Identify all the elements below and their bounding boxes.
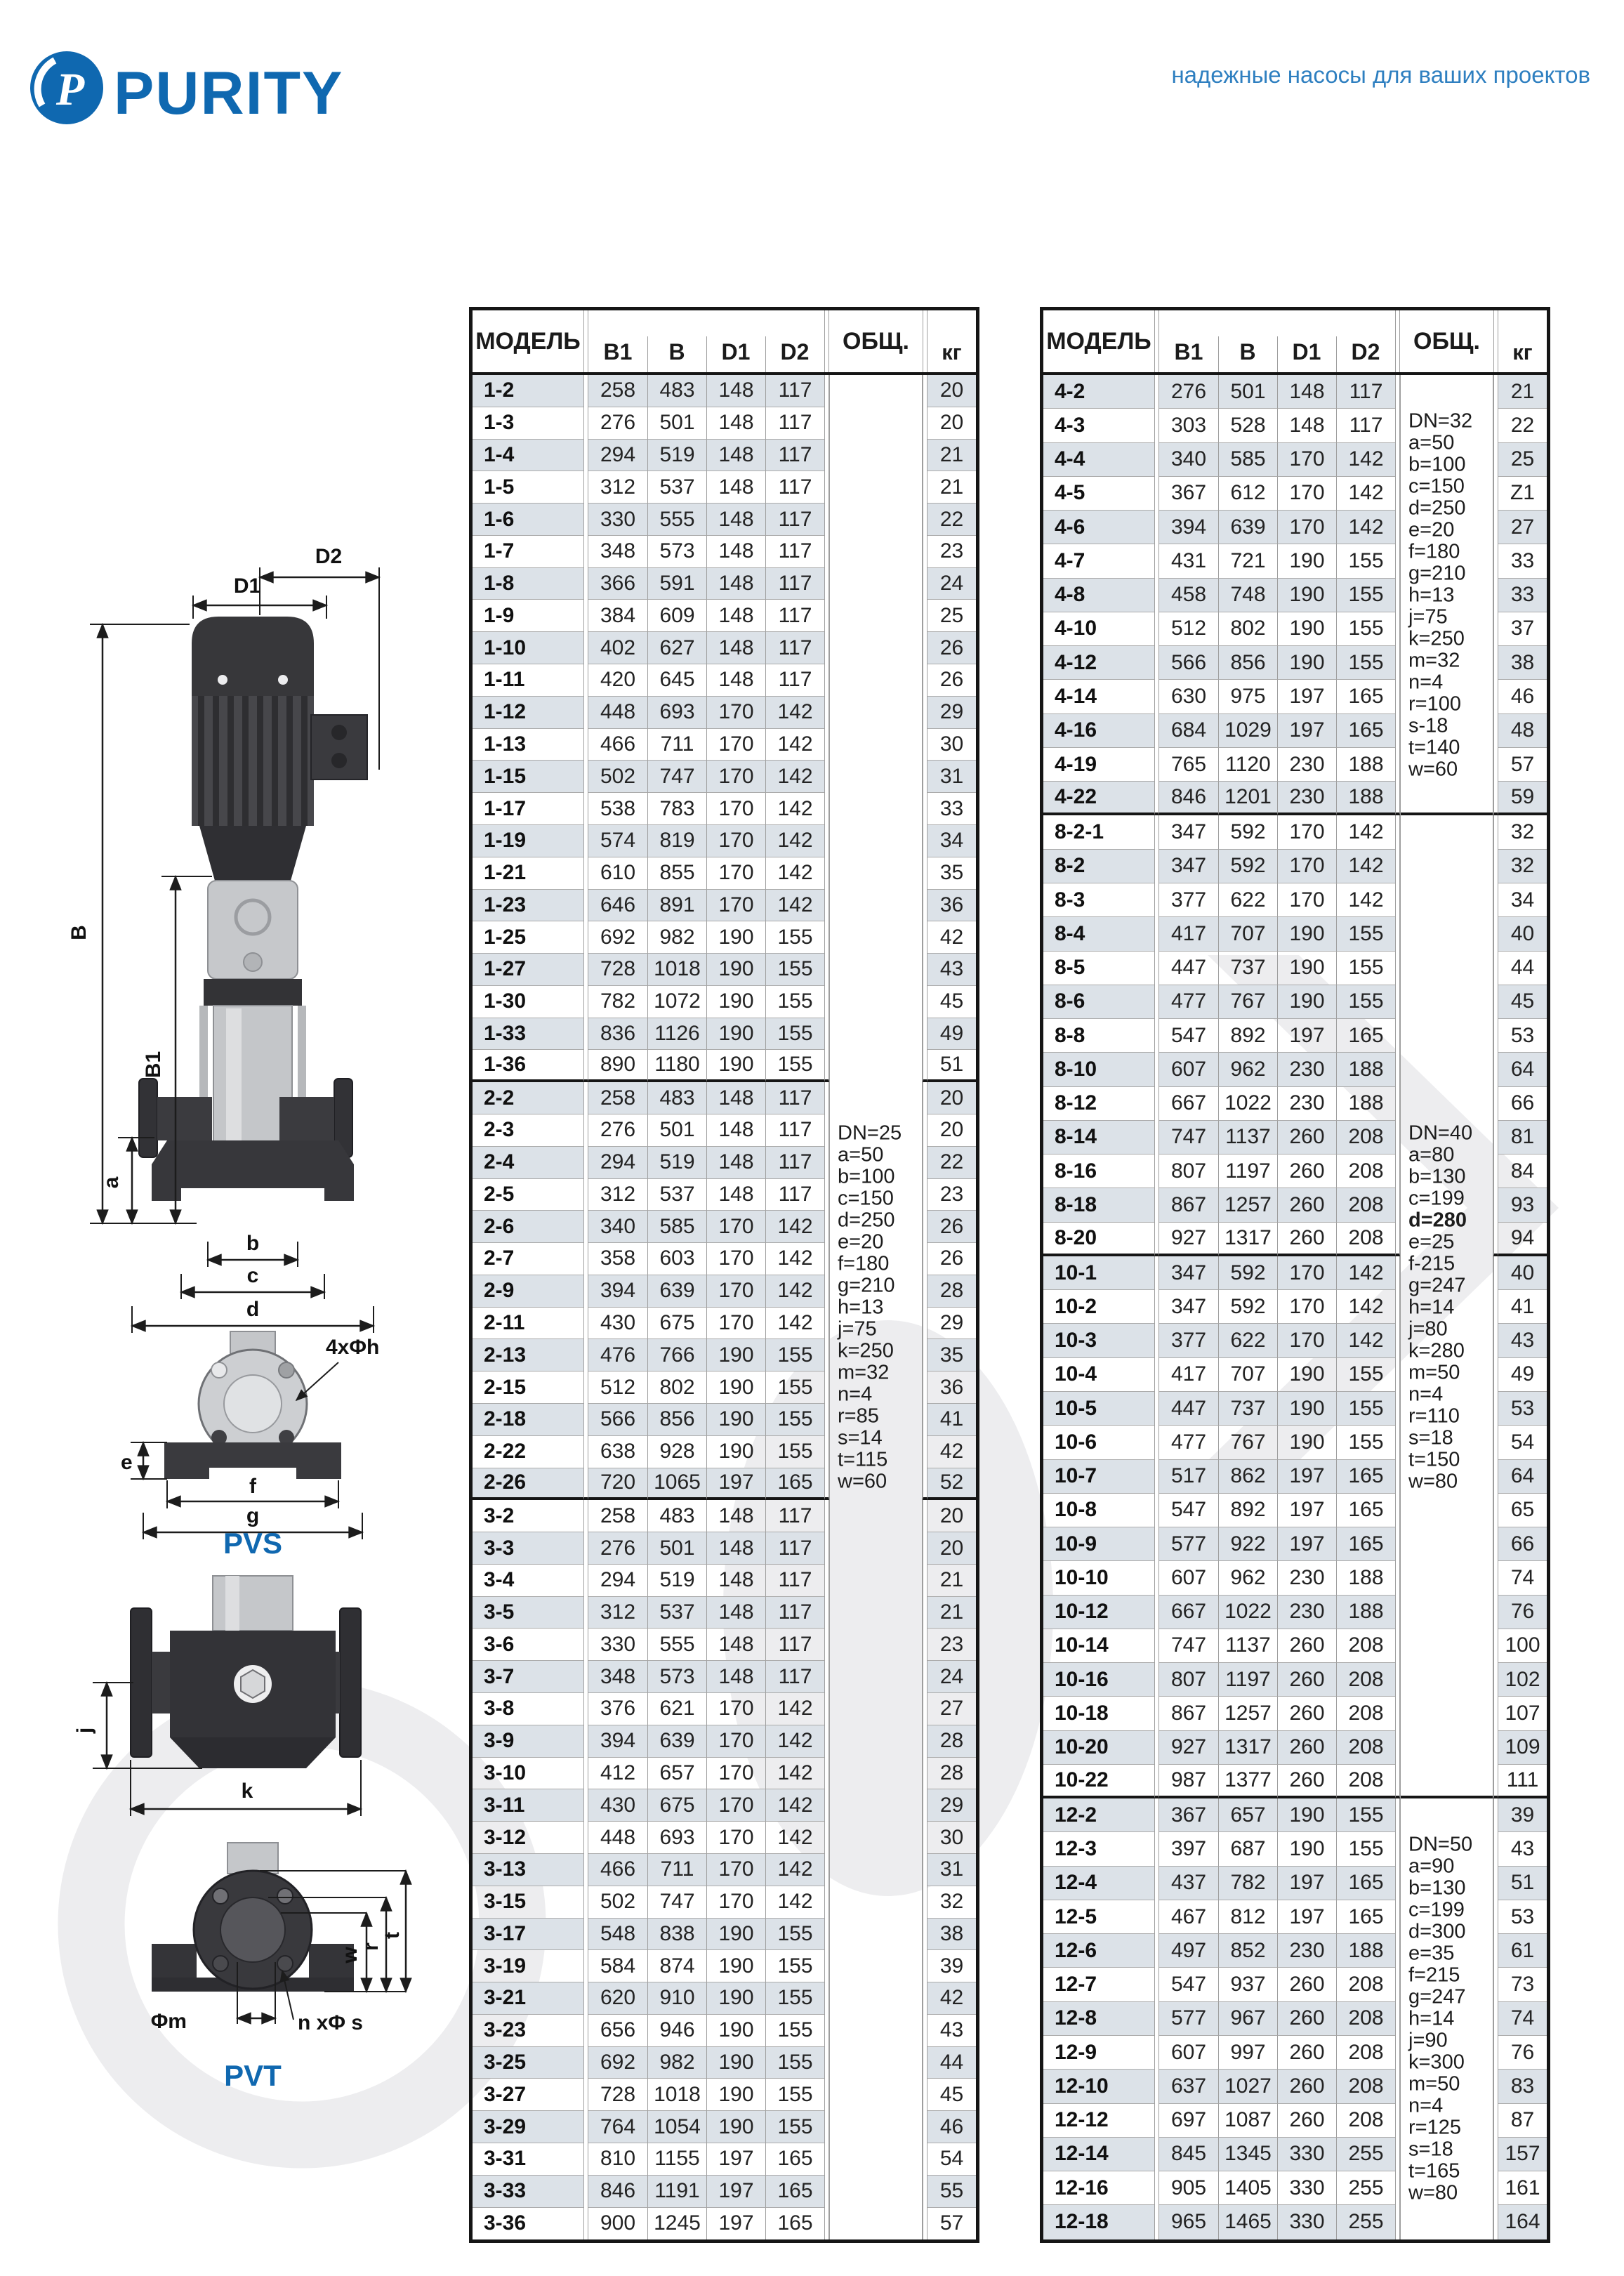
dim-cell: 584	[588, 1950, 647, 1982]
dim-cell: 637	[1159, 2070, 1218, 2103]
dim-cell: 377	[1159, 1324, 1218, 1357]
column-gap	[583, 1919, 588, 1951]
dim-cell: 1018	[647, 2079, 706, 2111]
header-d2: D2	[1336, 310, 1395, 372]
column-gap	[923, 1661, 927, 1693]
dim-cell: 276	[1159, 375, 1218, 409]
dim-cell: 258	[588, 1500, 647, 1532]
dim-cell: 692	[588, 921, 647, 954]
dim-cell: 693	[647, 1822, 706, 1854]
weight-cell: 44	[927, 2047, 976, 2079]
weight-cell: 74	[1498, 2002, 1547, 2036]
model-cell: 3-9	[473, 1725, 583, 1758]
dim-cell: 367	[1159, 477, 1218, 511]
dim-cell: 366	[588, 568, 647, 600]
dim-cell: 965	[1159, 2205, 1218, 2239]
dim-cell: 170	[706, 1758, 765, 1790]
dim-label-w: w	[338, 1947, 362, 1964]
column-gap	[1154, 985, 1159, 1019]
model-cell: 4-5	[1043, 477, 1154, 511]
model-cell: 12-3	[1043, 1832, 1154, 1866]
dim-label-b-width: b	[246, 1232, 259, 1255]
weight-cell: 33	[1498, 579, 1547, 612]
weight-cell: 107	[1498, 1697, 1547, 1730]
dim-cell: 142	[765, 890, 824, 922]
dim-cell: 437	[1159, 1867, 1218, 1900]
column-gap	[1493, 1155, 1498, 1188]
column-gap	[923, 1919, 927, 1951]
weight-cell: 20	[927, 407, 976, 440]
dim-cell: 148	[706, 1629, 765, 1661]
column-gap	[923, 1371, 927, 1404]
model-cell: 8-14	[1043, 1121, 1154, 1155]
weight-cell: Z1	[1498, 477, 1547, 511]
dim-cell: 170	[1277, 815, 1336, 849]
dim-cell: 910	[647, 1982, 706, 2015]
dim-cell: 117	[765, 1597, 824, 1629]
dim-cell: 276	[588, 407, 647, 440]
column-gap	[923, 536, 927, 568]
column-gap	[1493, 680, 1498, 713]
column-gap	[1395, 2138, 1400, 2171]
dim-cell: 255	[1336, 2171, 1395, 2205]
dim-cell: 197	[1277, 1867, 1336, 1900]
column-gap	[1154, 1053, 1159, 1086]
dim-cell: 807	[1159, 1155, 1218, 1188]
dim-cell: 190	[1277, 646, 1336, 680]
dim-cell: 846	[588, 2176, 647, 2208]
column-gap	[1493, 917, 1498, 951]
dim-cell: 430	[588, 1308, 647, 1340]
weight-cell: 93	[1498, 1188, 1547, 1222]
dim-cell: 188	[1336, 1087, 1395, 1121]
weight-cell: 87	[1498, 2104, 1547, 2138]
dim-cell: 142	[765, 1275, 824, 1308]
column-gap	[1154, 1663, 1159, 1697]
dim-cell: 142	[765, 1854, 824, 1886]
column-gap	[923, 1436, 927, 1468]
column-gap	[1395, 579, 1400, 612]
model-cell: 4-12	[1043, 646, 1154, 680]
column-gap	[1395, 1832, 1400, 1866]
dim-cell: 431	[1159, 544, 1218, 578]
column-gap	[583, 761, 588, 793]
column-gap	[824, 440, 829, 472]
dim-cell: 692	[588, 2047, 647, 2079]
dim-cell: 148	[706, 600, 765, 632]
dim-cell: 165	[765, 1468, 824, 1501]
dim-cell: 1191	[647, 2176, 706, 2208]
dim-cell: 747	[647, 761, 706, 793]
model-cell: 12-16	[1043, 2171, 1154, 2205]
column-gap	[1154, 1392, 1159, 1426]
dim-cell: 155	[765, 2111, 824, 2143]
dim-cell: 170	[706, 1854, 765, 1886]
dim-cell: 155	[1336, 952, 1395, 985]
column-gap	[1493, 1867, 1498, 1900]
column-gap	[1493, 1596, 1498, 1629]
column-gap	[1493, 511, 1498, 544]
column-gap	[583, 890, 588, 922]
dim-cell: 142	[765, 825, 824, 857]
column-gap	[583, 793, 588, 825]
dim-cell: 197	[1277, 1494, 1336, 1527]
column-gap	[583, 1789, 588, 1822]
weight-cell: 76	[1498, 1596, 1547, 1629]
dim-cell: 117	[765, 1661, 824, 1693]
dim-cell: 190	[1277, 1392, 1336, 1426]
dim-cell: 255	[1336, 2138, 1395, 2171]
model-cell: 1-33	[473, 1018, 583, 1051]
column-gap	[583, 600, 588, 632]
dim-cell: 170	[706, 825, 765, 857]
column-gap	[1154, 1087, 1159, 1121]
dim-cell: 188	[1336, 782, 1395, 815]
column-gap	[923, 825, 927, 857]
dim-cell: 165	[1336, 1900, 1395, 1934]
column-gap	[824, 1532, 829, 1565]
dim-cell: 555	[647, 1629, 706, 1661]
header-b1: B1	[588, 310, 647, 372]
model-cell: 1-21	[473, 857, 583, 890]
dim-cell: 577	[1159, 1527, 1218, 1561]
dim-label-k: k	[242, 1780, 253, 1803]
column-gap	[923, 1597, 927, 1629]
dim-cell: 367	[1159, 1798, 1218, 1832]
dim-cell: 142	[765, 1211, 824, 1243]
column-gap	[583, 825, 588, 857]
column-gap	[1395, 375, 1400, 409]
weight-cell: 164	[1498, 2205, 1547, 2239]
model-cell: 2-18	[473, 1404, 583, 1436]
column-gap	[1493, 2138, 1498, 2171]
dim-cell: 905	[1159, 2171, 1218, 2205]
column-gap	[1493, 2002, 1498, 2036]
dim-cell: 466	[588, 729, 647, 761]
model-cell: 3-15	[473, 1886, 583, 1919]
dim-cell: 862	[1218, 1460, 1277, 1494]
column-gap	[583, 1114, 588, 1147]
dim-cell: 747	[1159, 1121, 1218, 1155]
dim-cell: 967	[1218, 2002, 1277, 2036]
weight-cell: 43	[1498, 1832, 1547, 1866]
dim-cell: 547	[1159, 1019, 1218, 1053]
dim-cell: 982	[647, 921, 706, 954]
dim-cell: 1029	[1218, 714, 1277, 748]
column-gap	[583, 1532, 588, 1565]
dim-cell: 621	[647, 1693, 706, 1725]
weight-cell: 48	[1498, 714, 1547, 748]
dim-cell: 430	[588, 1789, 647, 1822]
dim-cell: 476	[588, 1339, 647, 1371]
dim-cell: 1137	[1218, 1629, 1277, 1663]
dim-cell: 330	[1277, 2205, 1336, 2239]
column-gap	[1154, 1223, 1159, 1256]
dim-cell: 497	[1159, 1934, 1218, 1968]
dim-cell: 645	[647, 664, 706, 697]
dim-cell: 142	[765, 1822, 824, 1854]
model-cell: 8-10	[1043, 1053, 1154, 1086]
column-gap	[1395, 2036, 1400, 2070]
model-cell: 2-4	[473, 1147, 583, 1179]
column-gap	[583, 375, 588, 407]
column-gap	[583, 921, 588, 954]
column-gap	[1493, 1697, 1498, 1730]
column-gap	[583, 568, 588, 600]
column-gap	[1493, 443, 1498, 477]
column-gap	[583, 1275, 588, 1308]
column-gap	[1493, 1426, 1498, 1459]
weight-cell: 39	[927, 1950, 976, 1982]
weight-cell: 37	[1498, 612, 1547, 646]
model-cell: 8-2	[1043, 850, 1154, 883]
column-gap	[1154, 815, 1159, 849]
weight-cell: 38	[1498, 646, 1547, 680]
dim-cell: 555	[647, 504, 706, 536]
weight-cell: 55	[927, 2176, 976, 2208]
model-cell: 1-19	[473, 825, 583, 857]
model-cell: 1-4	[473, 440, 583, 472]
weight-cell: 36	[927, 1371, 976, 1404]
dim-cell: 330	[588, 1629, 647, 1661]
column-gap	[1493, 1561, 1498, 1595]
dim-cell: 142	[765, 1758, 824, 1790]
column-gap	[1395, 1256, 1400, 1290]
column-gap	[1154, 782, 1159, 815]
column-gap	[1395, 1968, 1400, 2001]
model-cell: 2-6	[473, 1211, 583, 1243]
column-gap	[923, 2079, 927, 2111]
column-gap	[1493, 1324, 1498, 1357]
header-total: ОБЩ.	[1400, 310, 1493, 372]
column-gap	[583, 729, 588, 761]
dim-cell: 197	[1277, 1019, 1336, 1053]
dim-cell: 340	[1159, 443, 1218, 477]
dim-cell: 728	[588, 954, 647, 986]
column-gap	[824, 1404, 829, 1436]
header-b1: B1	[1159, 310, 1218, 372]
column-gap	[1493, 375, 1498, 409]
dim-cell: 170	[1277, 1256, 1336, 1290]
column-gap	[923, 1725, 927, 1758]
column-gap	[1395, 443, 1400, 477]
weight-cell: 64	[1498, 1053, 1547, 1086]
dim-cell: 170	[1277, 477, 1336, 511]
column-gap	[1395, 1527, 1400, 1561]
dim-cell: 548	[588, 1919, 647, 1951]
column-gap	[824, 1371, 829, 1404]
model-cell: 3-7	[473, 1661, 583, 1693]
dim-label-d: d	[246, 1298, 259, 1321]
dim-cell: 142	[765, 1308, 824, 1340]
weight-cell: 44	[1498, 952, 1547, 985]
weight-cell: 32	[1498, 815, 1547, 849]
column-gap	[824, 664, 829, 697]
dim-cell: 230	[1277, 782, 1336, 815]
weight-cell: 42	[927, 921, 976, 954]
common-dims-column: DN=25a=50b=100c=150d=250e=20f=180g=210h=…	[829, 375, 923, 2239]
column-gap	[923, 1339, 927, 1371]
column-gap	[1154, 1798, 1159, 1832]
column-gap	[824, 761, 829, 793]
column-gap	[1493, 544, 1498, 578]
column-gap	[824, 2047, 829, 2079]
column-gap	[1395, 1798, 1400, 1832]
dim-label-d1: D1	[234, 574, 260, 598]
column-gap	[824, 375, 829, 407]
dim-cell: 155	[1336, 1426, 1395, 1459]
column-gap	[824, 2208, 829, 2240]
weight-cell: 25	[927, 600, 976, 632]
model-cell: 12-14	[1043, 2138, 1154, 2171]
column-gap	[1493, 646, 1498, 680]
column-gap	[1154, 1426, 1159, 1459]
weight-cell: 111	[1498, 1765, 1547, 1798]
dim-cell: 155	[765, 2047, 824, 2079]
dim-cell: 155	[1336, 544, 1395, 578]
dim-cell: 417	[1159, 917, 1218, 951]
weight-cell: 43	[927, 2015, 976, 2047]
column-gap	[1154, 952, 1159, 985]
dim-cell: 208	[1336, 1188, 1395, 1222]
column-gap	[583, 2079, 588, 2111]
weight-cell: 94	[1498, 1223, 1547, 1256]
model-cell: 8-2-1	[1043, 815, 1154, 849]
model-cell: 1-13	[473, 729, 583, 761]
column-gap	[1493, 1392, 1498, 1426]
column-gap	[1493, 1663, 1498, 1697]
dim-cell: 190	[706, 1982, 765, 2015]
dim-cell: 577	[1159, 2002, 1218, 2036]
column-gap	[923, 2111, 927, 2143]
column-gap	[583, 857, 588, 890]
dim-cell: 900	[588, 2208, 647, 2240]
pvt-pump-diagram: j k w r t Φm n xΦ s PVT	[49, 1567, 442, 2101]
dim-cell: 810	[588, 2143, 647, 2176]
column-gap	[1395, 2205, 1400, 2239]
dim-cell: 477	[1159, 1426, 1218, 1459]
model-cell: 10-16	[1043, 1663, 1154, 1697]
weight-cell: 26	[927, 1243, 976, 1275]
dim-cell: 170	[706, 1789, 765, 1822]
column-gap	[923, 2015, 927, 2047]
column-gap	[923, 761, 927, 793]
model-cell: 10-22	[1043, 1765, 1154, 1798]
dim-cell: 458	[1159, 579, 1218, 612]
column-gap	[1154, 544, 1159, 578]
column-gap	[824, 921, 829, 954]
dim-cell: 675	[647, 1308, 706, 1340]
dim-cell: 165	[1336, 1494, 1395, 1527]
weight-cell: 40	[1498, 1256, 1547, 1290]
dim-cell: 592	[1218, 1290, 1277, 1324]
weight-cell: 84	[1498, 1155, 1547, 1188]
column-gap	[583, 471, 588, 504]
weight-cell: 45	[1498, 985, 1547, 1019]
model-cell: 3-23	[473, 2015, 583, 2047]
dim-cell: 117	[765, 664, 824, 697]
dim-cell: 117	[765, 440, 824, 472]
dim-cell: 303	[1159, 409, 1218, 442]
dim-cell: 117	[765, 375, 824, 407]
dim-cell: 1405	[1218, 2171, 1277, 2205]
weight-cell: 33	[1498, 544, 1547, 578]
dim-cell: 627	[647, 632, 706, 664]
dim-cell: 638	[588, 1436, 647, 1468]
dim-cell: 512	[588, 1371, 647, 1404]
weight-cell: 73	[1498, 1968, 1547, 2001]
dim-cell: 155	[765, 1436, 824, 1468]
dim-cell: 891	[647, 890, 706, 922]
dim-cell: 190	[1277, 1358, 1336, 1392]
dim-cell: 155	[765, 921, 824, 954]
column-gap	[583, 1822, 588, 1854]
weight-cell: 21	[927, 471, 976, 504]
column-gap	[1395, 1223, 1400, 1256]
dim-cell: 117	[765, 1565, 824, 1597]
header-kg: кг	[1498, 310, 1547, 372]
model-cell: 1-15	[473, 761, 583, 793]
model-cell: 4-4	[1043, 443, 1154, 477]
dim-cell: 148	[706, 1147, 765, 1179]
dim-cell: 585	[1218, 443, 1277, 477]
dim-cell: 208	[1336, 2002, 1395, 2036]
dim-cell: 1027	[1218, 2070, 1277, 2103]
dim-cell: 142	[1336, 1290, 1395, 1324]
column-gap	[1395, 714, 1400, 748]
dim-cell: 148	[706, 440, 765, 472]
dim-cell: 190	[1277, 1426, 1336, 1459]
dim-cell: 148	[706, 536, 765, 568]
dim-cell: 142	[1336, 511, 1395, 544]
dim-cell: 610	[588, 857, 647, 890]
dim-cell: 447	[1159, 952, 1218, 985]
column-gap	[1395, 2104, 1400, 2138]
dim-cell: 394	[588, 1275, 647, 1308]
column-gap	[1154, 850, 1159, 883]
dim-cell: 1257	[1218, 1188, 1277, 1222]
model-cell: 2-22	[473, 1436, 583, 1468]
column-gap	[1395, 477, 1400, 511]
dim-cell: 483	[647, 1500, 706, 1532]
model-cell: 1-27	[473, 954, 583, 986]
dim-cell: 607	[1159, 1053, 1218, 1086]
weight-cell: 109	[1498, 1731, 1547, 1765]
column-gap	[583, 2208, 588, 2240]
model-cell: 10-12	[1043, 1596, 1154, 1629]
dim-cell: 340	[588, 1211, 647, 1243]
dim-cell: 783	[647, 793, 706, 825]
weight-cell: 42	[927, 1982, 976, 2015]
dim-cell: 1377	[1218, 1765, 1277, 1798]
dim-cell: 358	[588, 1243, 647, 1275]
column-gap	[1493, 612, 1498, 646]
weight-cell: 76	[1498, 2036, 1547, 2070]
weight-cell: 65	[1498, 1494, 1547, 1527]
dim-cell: 155	[1336, 917, 1395, 951]
column-gap	[1493, 1832, 1498, 1866]
column-gap	[1154, 1629, 1159, 1663]
dim-cell: 519	[647, 440, 706, 472]
dim-cell: 1072	[647, 986, 706, 1018]
model-cell: 3-36	[473, 2208, 583, 2240]
dim-cell: 197	[1277, 680, 1336, 713]
weight-cell: 30	[927, 1822, 976, 1854]
column-gap	[1154, 1596, 1159, 1629]
model-cell: 1-30	[473, 986, 583, 1018]
dim-cell: 721	[1218, 544, 1277, 578]
model-cell: 8-8	[1043, 1019, 1154, 1053]
